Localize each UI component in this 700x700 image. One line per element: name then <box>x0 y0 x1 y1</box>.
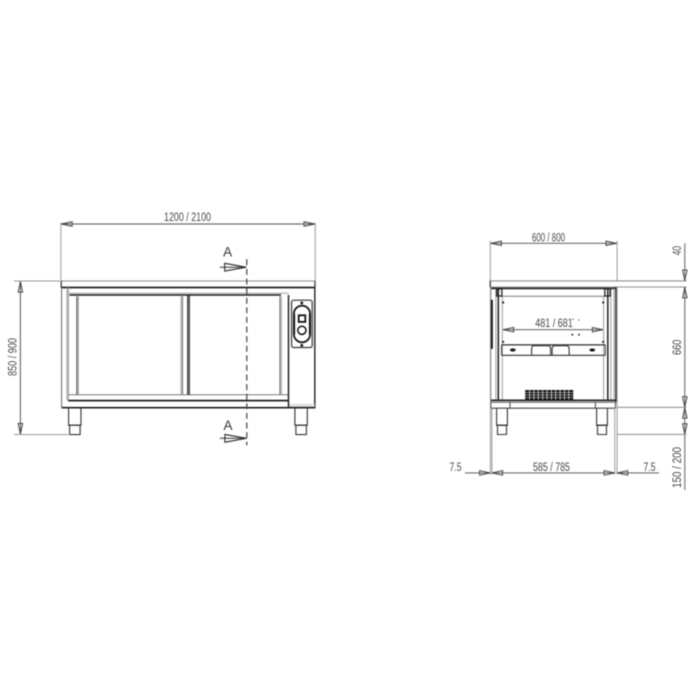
svg-text:A: A <box>223 418 232 433</box>
svg-text:585 / 785: 585 / 785 <box>533 462 570 474</box>
svg-text:481 / 681: 481 / 681 <box>535 316 573 330</box>
svg-text:7.5: 7.5 <box>450 462 462 474</box>
svg-text:850 / 900: 850 / 900 <box>8 338 20 376</box>
svg-text:600 / 800: 600 / 800 <box>532 232 565 244</box>
svg-text:150 / 200: 150 / 200 <box>672 447 684 488</box>
svg-text:A: A <box>223 245 232 260</box>
svg-text:1200 / 2100: 1200 / 2100 <box>164 212 211 224</box>
svg-text:660: 660 <box>672 340 684 356</box>
svg-text:7.5: 7.5 <box>644 462 656 474</box>
svg-text:40: 40 <box>672 246 684 256</box>
